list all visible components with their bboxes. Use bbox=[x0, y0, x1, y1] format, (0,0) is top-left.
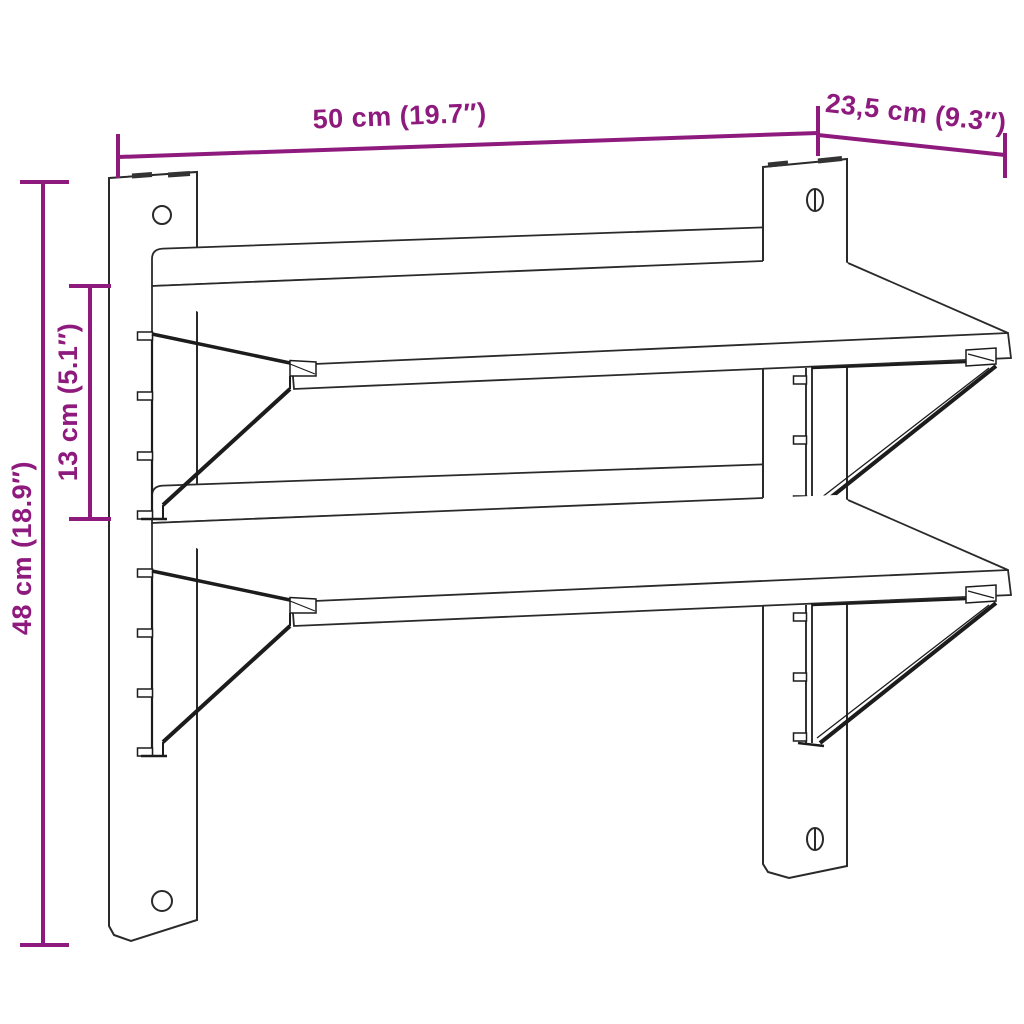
rail-top-nub bbox=[132, 175, 152, 177]
shelf-dimension-diagram: 50 cm (19.7″) 23,5 cm (9.3″) 48 cm (18.9… bbox=[0, 0, 1024, 1024]
screw-hole-bottom-left bbox=[152, 891, 172, 911]
height-dimension-label: 48 cm (18.9″) bbox=[7, 461, 37, 635]
rail-top-nub bbox=[168, 174, 190, 176]
bracket-front-clip bbox=[290, 598, 316, 614]
width-dimension-label: 50 cm (19.7″) bbox=[312, 98, 487, 135]
rail-top-nub bbox=[768, 163, 788, 165]
screw-hole-top-left bbox=[153, 206, 171, 224]
rail-top-nub bbox=[818, 159, 842, 162]
bracket-front-clip bbox=[290, 361, 316, 377]
depth-dimension-label: 23,5 cm (9.3″) bbox=[824, 88, 1008, 138]
shelf-gap-dimension-label: 13 cm (5.1″) bbox=[53, 323, 83, 482]
diagram-canvas: 50 cm (19.7″) 23,5 cm (9.3″) 48 cm (18.9… bbox=[0, 0, 1024, 1024]
